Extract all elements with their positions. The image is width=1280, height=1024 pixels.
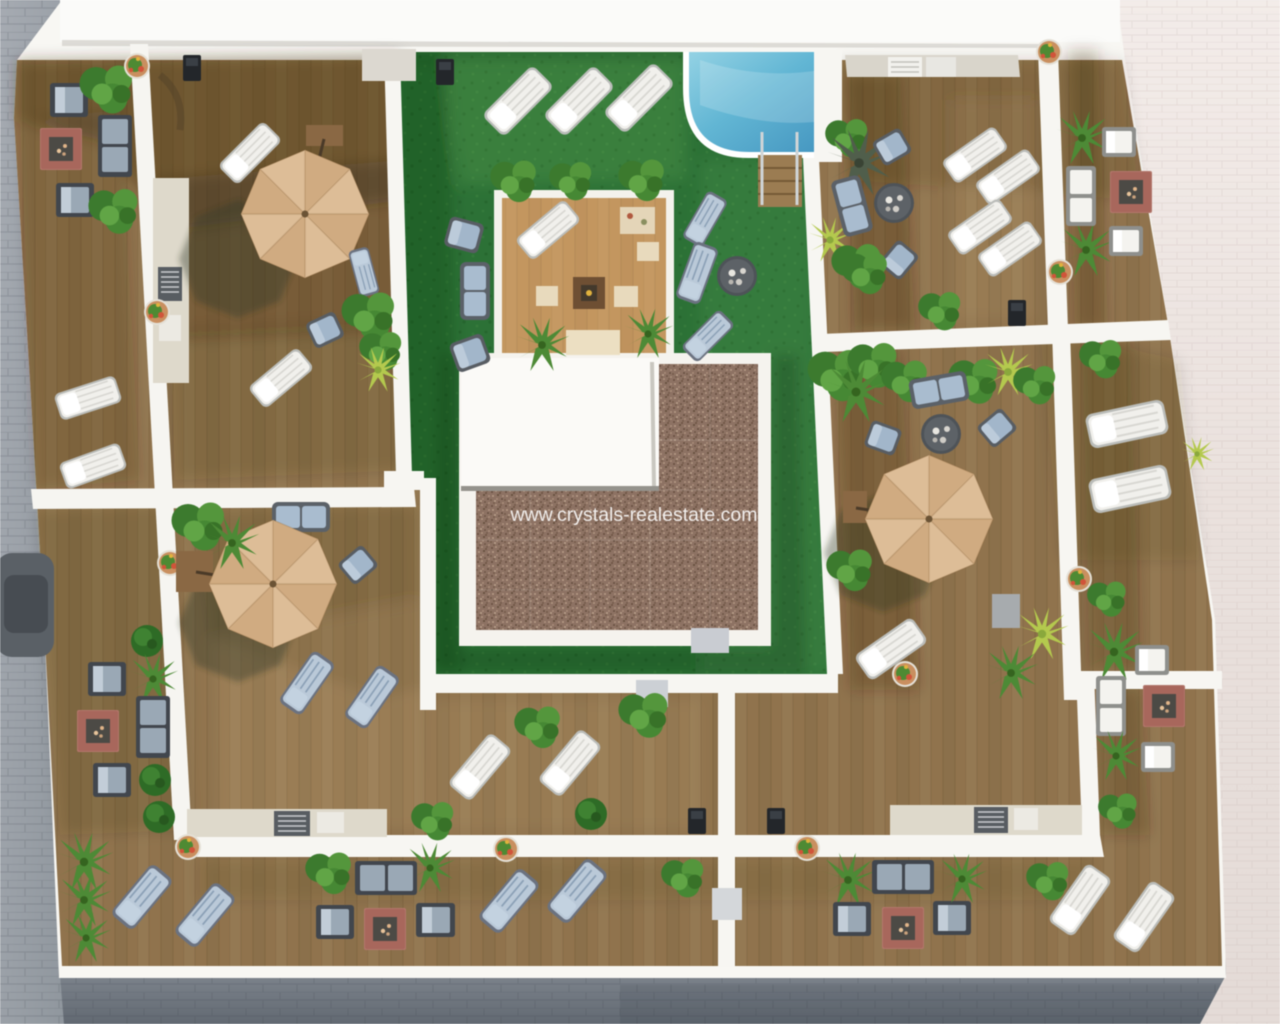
svg-text:www.crystals-realestate.com: www.crystals-realestate.com: [509, 504, 757, 526]
